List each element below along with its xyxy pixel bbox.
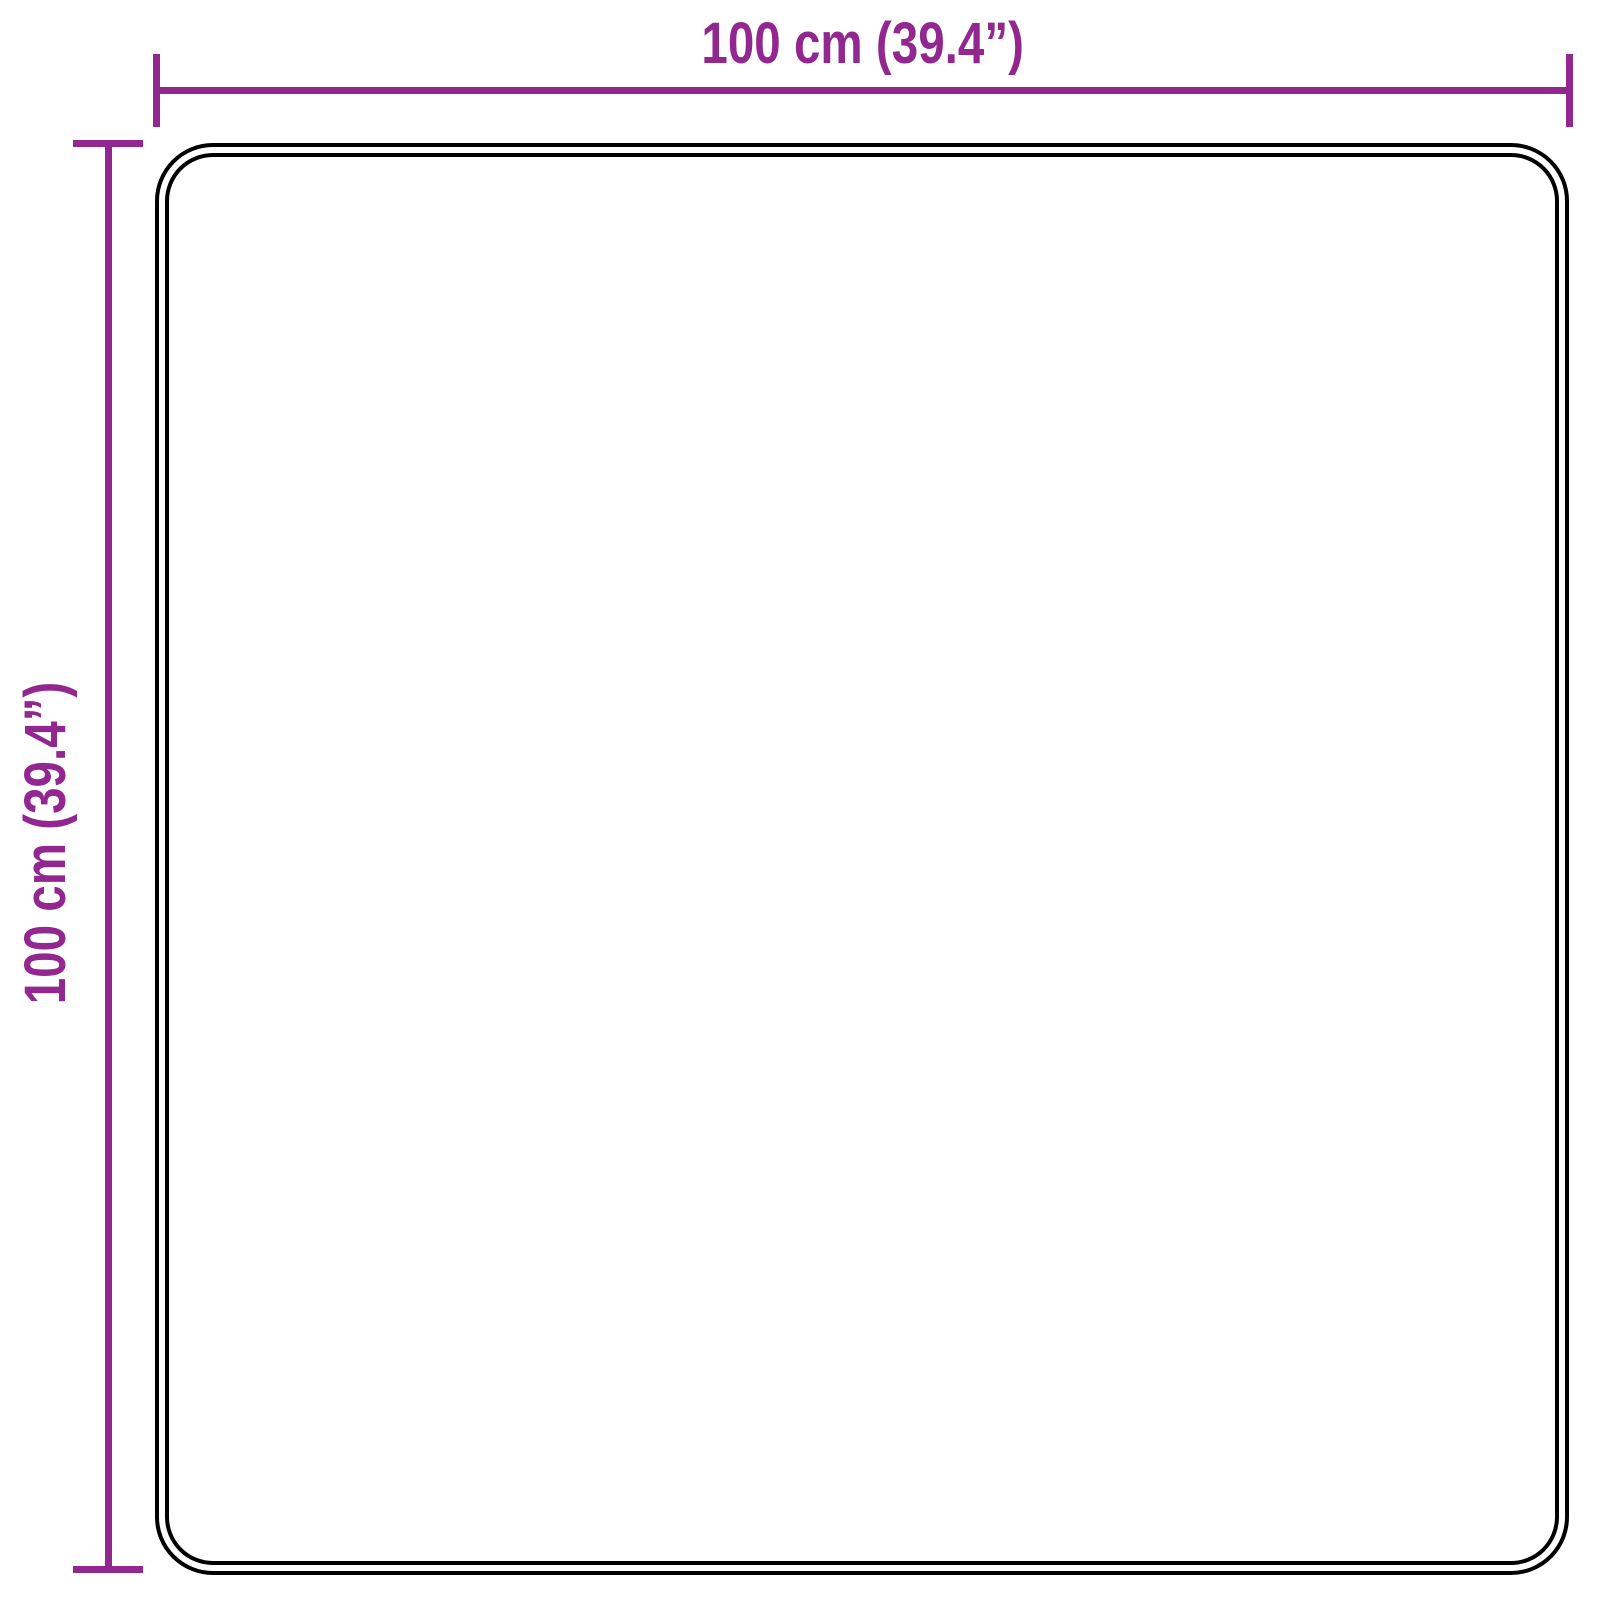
width-dimension-line: [156, 87, 1570, 94]
height-dimension-tick-top: [73, 140, 143, 147]
height-dimension-tick-bottom: [73, 1566, 143, 1573]
dimension-diagram: 100 cm (39.4”) 100 cm (39.4”): [0, 0, 1600, 1600]
product-outline-inner: [165, 153, 1559, 1565]
width-dimension-label: 100 cm (39.4”): [153, 12, 1573, 76]
height-dimension-label-text: 100 cm (39.4”): [14, 682, 78, 1005]
product-outline-outer: [155, 143, 1569, 1575]
height-dimension-line: [105, 143, 112, 1570]
height-dimension-label: 100 cm (39.4”): [14, 646, 78, 1039]
width-dimension-label-text: 100 cm (39.4”): [702, 12, 1025, 76]
